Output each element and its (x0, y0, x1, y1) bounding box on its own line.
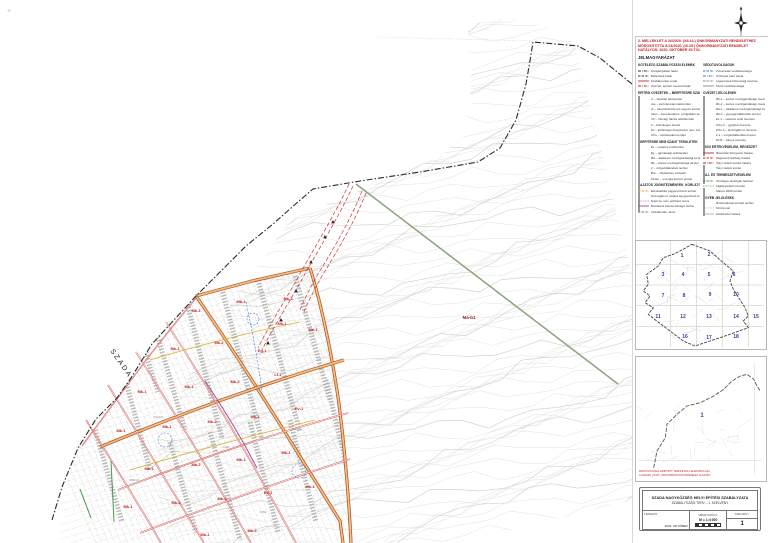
legend-symbol-dashed-icon (703, 79, 714, 83)
index-grid (636, 241, 764, 347)
designer-label: TERVEZŐ: (644, 512, 658, 516)
mini-map-note: MÓDOSÍTÁSSAL ÉRINTETT TERÜLETEK LEHATÁRO… (639, 470, 763, 477)
legend-label: KÖu-2 – gyűjtőút övezete (716, 123, 751, 127)
sheet-number: 3 (662, 272, 665, 278)
legend-section-header: VÉDŐTÁVOLSÁGOK (703, 63, 765, 67)
legend-label: V-1 – vízgazdálkodási övezet (716, 133, 756, 137)
legend-row: Beültetési kötelezettségű terület (638, 204, 700, 209)
legend-section-header: BEÉPÍTÉSRE NEM SZÁNT TERÜLETEK (638, 140, 700, 144)
area-zone-label: Má-b1 (462, 315, 475, 320)
legend-label: Kb-En – energia közmű terület (651, 177, 693, 181)
legend-section-header: ÉPÍTÉSI ÖVEZETEK – BEÉPÍTÉSRE SZÁNT TERÜ… (638, 91, 700, 95)
mini-boundary (654, 374, 761, 467)
legend-label: Földrészlet határa (716, 212, 741, 216)
amendment-note-line: 2. MELLÉKLET A 26/2020. (XII.14.) ÖNKORM… (638, 39, 768, 44)
legend-label: Közút védőtávolsága (716, 84, 745, 88)
legend-label: Vízvezeték védőtávolsága (716, 69, 752, 73)
legend-label: Zkp – zöldterület, közpark (651, 171, 686, 175)
zone-label: Mk-1 (191, 308, 201, 313)
legend-label: Kb – különleges beépítésre nem szánt ter… (651, 128, 700, 132)
legend-label: Országos ökológiai hálózat (716, 179, 753, 183)
title-block-row: TERVEZŐ: 2020. OKTÓBER MÉRETARÁNY: M = 1… (642, 511, 758, 530)
legend-row: Gksz – kereskedelmi, szolgáltató terület (638, 112, 700, 117)
legend-row: Má – általános mezőgazdasági terület (638, 155, 700, 160)
sheet-number: 16 (682, 334, 688, 340)
legend-row: Vt – településközpont vegyes terület (638, 107, 700, 112)
zone-label: Mk-1 (184, 384, 194, 389)
legend-row: Mk-1 – kertes mezőgazdasági övezet (703, 96, 765, 101)
legend-symbol-dotted-icon (638, 199, 649, 203)
legend-label: Módosítással érintett terület (716, 201, 754, 205)
zone-label: Mk-1 (144, 466, 154, 471)
legend-label: Mk-1 – kertes mezőgazdasági övezet (716, 97, 765, 101)
legend-label: Lke – kertvárosias lakóterület (651, 102, 691, 106)
legend-label: Belterületi határ (651, 74, 673, 78)
legend-row: Lke – kertvárosias lakóterület (638, 101, 700, 106)
legend-row: Védőfásítás, fasor (638, 209, 700, 214)
legend-label: Má-1 – általános mezőgazdasági övezet (716, 107, 765, 111)
legend-label: Szabályozási vonal (651, 79, 677, 83)
legend-symbol-hatch-icon (638, 194, 649, 198)
parcel-number: 089/12 (129, 478, 139, 482)
legend-label: Tájképvédelmi terület (716, 184, 745, 188)
mini-map-note-line: A 24/2020. (IX.25.) ÖNKORMÁNYZATI RENDEL… (639, 474, 763, 478)
legend-row: Kiszolgáló út céljára lejegyezhető terül… (638, 194, 700, 199)
legend-column: KÖTELEZŐ SZABÁLYOZÁSI ELEMEKKözigazgatás… (638, 61, 700, 216)
legend-row: Kb-En – energia közmű terület (638, 176, 700, 181)
legend-title: JELMAGYARÁZAT (638, 55, 768, 60)
legend-label: Légvezeték biztonsági övezete (716, 79, 758, 83)
parcel-number: 0126 (223, 445, 230, 449)
sheet-number: 11 (655, 314, 661, 320)
sheet-number: 4 (682, 272, 685, 278)
legend-label: V – vízgazdálkodási terület (651, 166, 688, 170)
legend-section-header: ÖVEZETI JELÖLÉSEK (703, 91, 765, 95)
zone-label: Mk-1 (236, 457, 246, 462)
legend-label: Telek be nem építhető része (651, 199, 690, 203)
legend-label: Kb-B – bánya övezete (716, 138, 746, 142)
zone-label: Lf-1 (274, 372, 282, 377)
legend-label: Má-b – gyepgazdálkodási övezet (716, 112, 761, 116)
zone-label: Mk-2 (247, 528, 257, 533)
mini-sheet-number: 1 (700, 413, 704, 419)
legend-panel: 2. MELLÉKLET A 26/2020. (XII.14.) ÖNKORM… (635, 36, 768, 242)
sheet-number: 12 (680, 314, 686, 320)
legend-label: Ev – védelmi erdőterület (651, 145, 684, 149)
legend-row: Má-b – gyepgazdálkodási övezet (703, 112, 765, 117)
zone-label: Mk-1 (305, 484, 315, 489)
zone-label: Má-1 (308, 327, 318, 332)
sheet-number: 15 (753, 314, 759, 320)
legend-symbol-solid-icon (703, 84, 714, 88)
legend-label: Vízfolyás parti sávja (716, 74, 744, 78)
legend-columns: KÖTELEZŐ SZABÁLYOZÁSI ELEMEKKözigazgatás… (638, 61, 768, 216)
legend-label: Védőfásítás, fasor (651, 210, 676, 214)
green-zone-boundary (356, 184, 618, 384)
legend-row: Légvezeték biztonsági övezete (703, 79, 765, 84)
zone-label: Mk-2 (207, 419, 217, 424)
zone-label: Mk-2 (230, 379, 240, 384)
sheet-number: 18 (733, 334, 739, 340)
legend-symbol-swatch-icon (703, 201, 714, 205)
amendment-location-map: 1 MÓDOSÍTÁSSAL ÉRINTETT TERÜLETEK LEHATÁ… (635, 356, 767, 482)
legend-section-header: EGYÉB JELÖLÉSEK (703, 196, 765, 200)
legend-label: KÖu-3 – kiszolgáló út övezete (716, 128, 757, 132)
zone-label: Mk-1 (137, 389, 147, 394)
legend-symbol-solid-icon (638, 79, 649, 83)
legend-symbol-solid-icon (638, 204, 649, 208)
legend-label: Natura 2000 terület (716, 189, 743, 193)
sheet-number: 6 (733, 272, 736, 278)
legend-symbol-dashed-icon (638, 74, 649, 78)
zone-label: Mk-2 (171, 500, 181, 505)
legend-row: Elővásárlási joggal érintett terület (638, 188, 700, 193)
zone-label: Mk-2 (191, 462, 201, 467)
legend-label: Ev-1 – védelmi erdő övezete (716, 117, 755, 121)
legend-row: Övezeti, építési övezeti határ (638, 84, 700, 89)
sheet-number: 2 (708, 252, 711, 258)
legend-symbol-swatch-icon (638, 171, 649, 175)
zone-label: Mk-1 (250, 414, 260, 419)
sheet-value: 1 (727, 519, 757, 529)
zone-label: Ev-1 (264, 490, 273, 495)
legend-row: Helyi védett épület (703, 166, 765, 171)
sheet-number: 14 (733, 314, 739, 320)
sheet-number: 13 (706, 314, 712, 320)
legend-symbol-solid-icon (703, 212, 714, 216)
place-label: SZADA (108, 348, 133, 379)
faint-dotted-line (378, 37, 532, 41)
zone-label: Mk-1 (162, 424, 172, 429)
sheet-number: 5 (708, 272, 711, 278)
legend-label: Helyi védett épület (716, 166, 741, 170)
legend-label: Vt – településközpont vegyes terület (651, 107, 700, 111)
date-value: 2020. OKTÓBER (665, 524, 688, 528)
legend-row: Mk-2 – kertes mezőgazdasági övezet (703, 101, 765, 106)
legend-label: Lf – falusias lakóterület (651, 97, 683, 101)
legend-label: Övezeti, építési övezeti határ (651, 84, 691, 88)
sheet-number: 8 (683, 293, 686, 299)
legend-section-header: SAJÁTOS JOGINTÉZMÉNYEK, KORLÁTOZÁSOK (638, 183, 700, 187)
legend-label: Műemléki környezet határa (716, 151, 753, 155)
sheet-index-map: 123456789101112131415161718 (635, 240, 767, 350)
sheet-number: 1 (681, 253, 684, 259)
legend-label: Üh – hétvégi házas üdülőterület (651, 117, 695, 121)
zone-label: Mk-1 (236, 299, 246, 304)
title-block: SZADA NAGYKÖZSÉG HELYI ÉPÍTÉSI SZABÁLYZA… (639, 487, 761, 531)
legend-symbol-dashed-icon (703, 179, 714, 183)
legend-symbol-swatch-icon (703, 138, 714, 142)
legend-label: Közigazgatási határ (651, 69, 678, 73)
legend-section-header: TÁJ- ÉS TERMÉSZETVÉDELEM (703, 173, 765, 177)
parcel-number: 0152 (260, 510, 267, 514)
legend-label: KÖu – közlekedési terület (651, 133, 686, 137)
scale-cell: MÉRETARÁNY: M = 1:4 000 (690, 511, 727, 529)
legend-symbol-dashdot-icon (638, 84, 649, 88)
zone-label: Mk-1 (217, 496, 227, 501)
legend-symbol-dashed-icon (703, 69, 714, 73)
legend-label: Régészeti lelőhely határa (716, 156, 751, 160)
legend-label: Szintvonal (716, 206, 730, 210)
legend-symbol-swatch-icon (638, 177, 649, 181)
designer-cell: TERVEZŐ: 2020. OKTÓBER (643, 511, 690, 529)
planned-road (258, 184, 366, 350)
legend-symbol-hatch-icon (703, 166, 714, 170)
legend-row: Földrészlet határa (703, 211, 765, 216)
legend-symbol-swatch-icon (638, 145, 649, 149)
legend-symbol-dashdot-icon (638, 69, 649, 73)
sheet-cell: SZELVÉNY: 1 (727, 511, 757, 529)
scale-label: MÉRETARÁNY: (698, 513, 718, 517)
municipal-boundary (52, 42, 632, 520)
scale-value: M = 1:4 000 (699, 518, 717, 522)
sheet-number: 7 (662, 293, 665, 299)
legend-label: Helyi védett terület határa (716, 161, 751, 165)
legend-symbol-swatch-icon (638, 117, 649, 121)
legend-label: Gksz – kereskedelmi, szolgáltató terület (651, 112, 700, 116)
zone-label: Mk-1 (123, 504, 133, 509)
legend-row: Mk – kertes mezőgazdasági terület (638, 160, 700, 165)
amendment-note-line: HATÁLYOS: 2020. OKTÓBER 25-TŐL (638, 48, 768, 53)
green-verge-line (111, 461, 114, 522)
amendment-note: 2. MELLÉKLET A 26/2020. (XII.14.) ÖNKORM… (638, 39, 768, 53)
legend-symbol-dotted-icon (703, 206, 714, 210)
legend-symbol-swatch-icon (638, 133, 649, 137)
legend-label: Kiszolgáló út céljára lejegyezhető terül… (651, 194, 700, 198)
legend-symbol-swatch-icon (703, 189, 714, 193)
zone-label: Ev-1 (295, 406, 304, 411)
legend-row: KÖu-3 – kiszolgáló út övezete (703, 127, 765, 132)
parcel-number: 0131/5 (291, 427, 301, 431)
legend-label: Má – általános mezőgazdasági terület (651, 156, 700, 160)
legend-symbol-dashed-icon (703, 156, 714, 160)
zone-label: Mk-1 (281, 450, 291, 455)
parcel-number: 0114/2 (154, 415, 163, 419)
sheet-number: 9 (709, 292, 712, 298)
main-map: SZADA Má-b1 Mk-1Mk-1Mk-2Mk-1Má-1Mk-1Mk-2… (0, 0, 632, 543)
legend-symbol-dashed-icon (638, 210, 649, 214)
plan-subtitle: SZABÁLYOZÁSI TERV – 1. SZELVÉNY (672, 501, 728, 505)
legend-row: Közút védőtávolsága (703, 84, 765, 89)
legend-row: Kb-B – bánya övezete (703, 138, 765, 143)
zone-label: Mk-1 (170, 346, 180, 351)
legend-symbol-solid-icon (703, 151, 714, 155)
zone-label: Mk-1 (116, 428, 126, 433)
legend-section-header: KÖTELEZŐ SZABÁLYOZÁSI ELEMEK (638, 63, 700, 67)
plan-sheet-page: + (0, 0, 768, 543)
green-verge-line (80, 489, 91, 518)
zone-label: Mk-2 (214, 340, 224, 345)
zone-label: Mk-1 (200, 532, 210, 537)
legend-row: KÖu – közlekedési terület (638, 132, 700, 137)
mini-street-mesh (636, 403, 752, 462)
sheet-number: 17 (706, 335, 712, 341)
legend-label: Elővásárlási joggal érintett terület (651, 189, 697, 193)
zone-label: Eg-1 (258, 348, 267, 353)
legend-label: Mk – kertes mezőgazdasági terület (651, 161, 699, 165)
legend-symbol-swatch-icon (638, 151, 649, 155)
legend-label: Mk-2 – kertes mezőgazdasági övezet (716, 102, 765, 106)
legend-row: Üh – hétvégi házas üdülőterület (638, 117, 700, 122)
north-arrow-icon (733, 6, 749, 38)
legend-row: Kb – különleges beépítésre nem szánt ter… (638, 127, 700, 132)
legend-section-header: MŰVI ÉRTÉKVÉDELEM, RÉGÉSZET (703, 145, 765, 149)
plan-title: SZADA NAGYKÖZSÉG HELYI ÉPÍTÉSI SZABÁLYZA… (652, 496, 749, 500)
contour-lines (36, 0, 632, 543)
legend-label: Beültetési kötelezettségű terület (651, 204, 695, 208)
legend-column: VÉDŐTÁVOLSÁGOKVízvezeték védőtávolságaVí… (703, 61, 765, 216)
legend-label: Eg – gazdasági erdőterület (651, 151, 688, 155)
legend-row: Má-1 – általános mezőgazdasági övezet (703, 107, 765, 112)
legend-symbol-dashdot-icon (703, 74, 714, 78)
title-block-title: SZADA NAGYKÖZSÉG HELYI ÉPÍTÉSI SZABÁLYZA… (642, 490, 758, 511)
legend-label: K – különleges terület (651, 123, 681, 127)
zone-label: Mk-2 (283, 296, 293, 301)
right-panel: 2. MELLÉKLET A 26/2020. (XII.14.) ÖNKORM… (632, 0, 768, 543)
zone-label: Mk-1 (277, 321, 287, 326)
sheet-number: 10 (733, 292, 739, 298)
legend-symbol-swatch-icon (703, 117, 714, 121)
graphic-scale-bar (695, 523, 721, 528)
legend-row: Natura 2000 terület (703, 188, 765, 193)
sheet-label: SZELVÉNY: (727, 511, 757, 519)
